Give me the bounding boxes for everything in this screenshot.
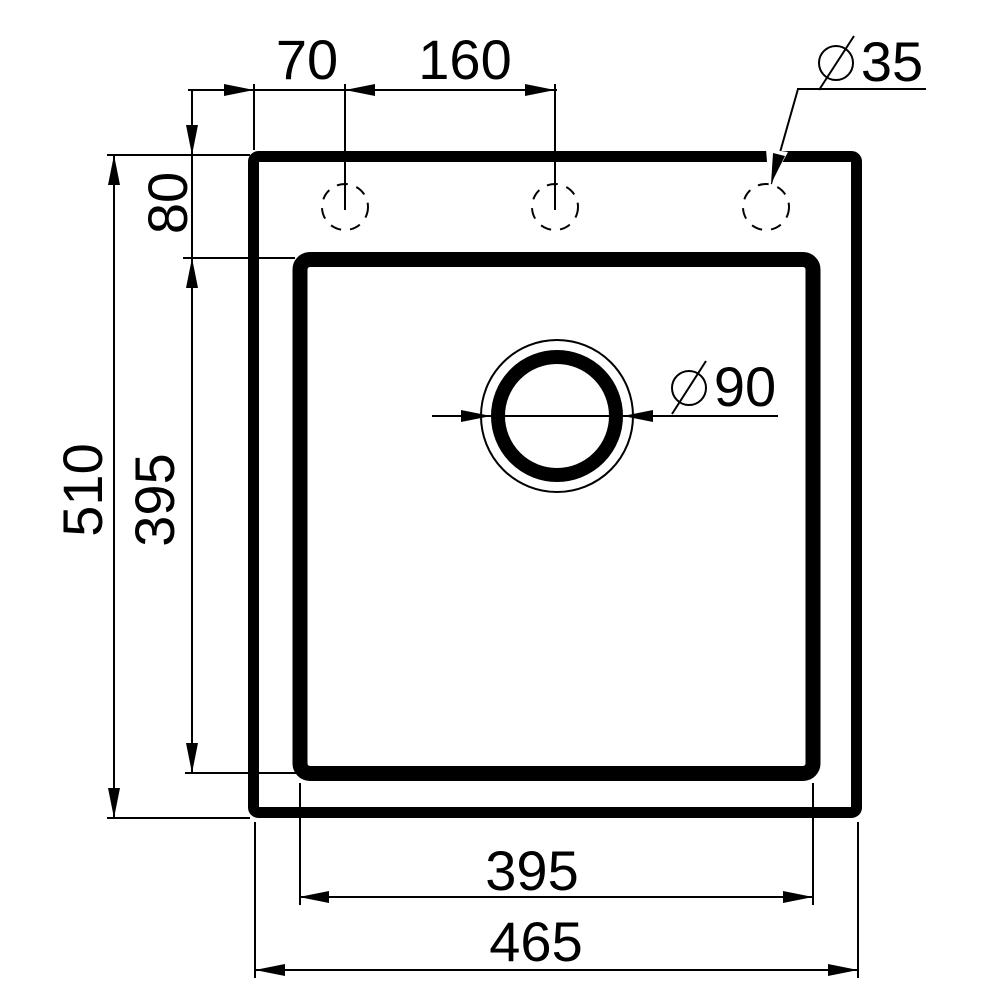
dimension-top-holes: 70 160 [188, 28, 557, 210]
arrow-395-right [783, 891, 813, 903]
callout-hole-diameter: 35 [766, 30, 926, 187]
sink-outline [254, 157, 857, 813]
sink-technical-drawing: 70 160 35 80 395 510 [0, 0, 1000, 1000]
dim-text-395-bottom: 395 [485, 839, 578, 902]
dim-text-510: 510 [51, 443, 114, 536]
arrow-510-top [108, 155, 120, 185]
diameter-symbol-slash [819, 36, 854, 90]
dim-text-70: 70 [276, 28, 338, 91]
dim-text-160: 160 [418, 28, 511, 91]
dim-text-90: 90 [714, 355, 776, 418]
arrow-70-left [224, 84, 254, 96]
arrow-465-right [828, 964, 858, 976]
dimension-left: 80 395 510 [51, 90, 297, 818]
sink-bowl-rect [300, 260, 813, 774]
diameter-symbol [819, 36, 854, 90]
dim-text-395-left: 395 [123, 453, 186, 546]
arrow-80-top [186, 125, 198, 155]
arrow-510-bottom [108, 788, 120, 818]
dim-text-80: 80 [136, 172, 199, 234]
arrow-395-left [299, 891, 329, 903]
leader-arrow [771, 153, 785, 184]
arrow-395-bottom [186, 743, 198, 773]
diameter-symbol [672, 361, 706, 414]
dim-text-465: 465 [489, 910, 582, 973]
faucet-hole-right [743, 184, 789, 230]
arrow-465-left [255, 964, 285, 976]
diameter-symbol-slash [672, 361, 706, 414]
arrow-70-right [345, 84, 375, 96]
dim-text-35: 35 [861, 30, 923, 93]
arrow-160-right [525, 84, 555, 96]
arrow-80-bottom-395-top [186, 258, 198, 288]
arrow-drain-right [623, 410, 653, 422]
arrow-drain-left [461, 410, 491, 422]
